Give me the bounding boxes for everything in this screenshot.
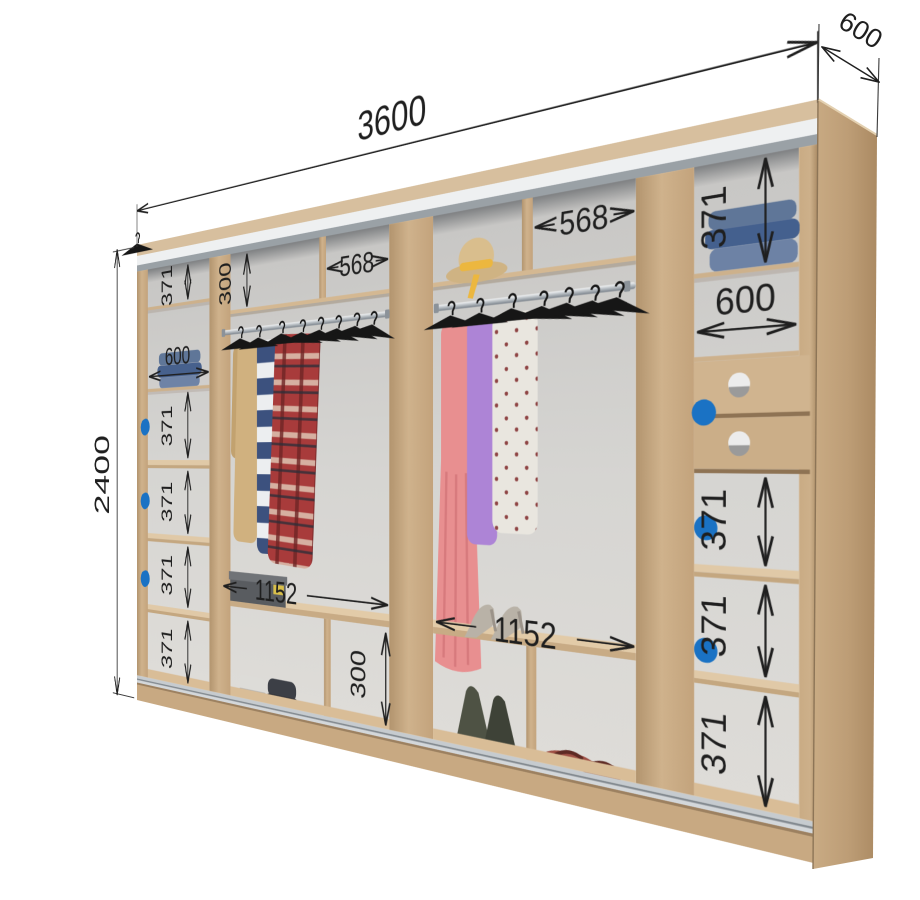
svg-text:371: 371 xyxy=(696,593,736,660)
dim-label-overall-height: 2400 xyxy=(91,435,114,515)
dim-label-overall-width: 3600 xyxy=(358,84,427,150)
svg-text:600: 600 xyxy=(165,342,191,372)
bottom-mini-partition-left xyxy=(324,619,331,718)
wardrobe-front-svg: 3600 2400 371 600 371 371 371 xyxy=(137,100,818,865)
wardrobe-front-face: 3600 2400 371 600 371 371 371 xyxy=(137,100,818,865)
svg-text:371: 371 xyxy=(159,405,176,446)
svg-text:300: 300 xyxy=(216,260,235,306)
dim-overall-height: 2400 xyxy=(91,246,134,700)
svg-text:568: 568 xyxy=(339,246,374,284)
partition-1 xyxy=(209,254,230,696)
wardrobe-dimension-diagram: 3600 2400 371 600 371 371 371 xyxy=(0,0,920,900)
svg-text:371: 371 xyxy=(159,264,176,308)
dim-label-overall-depth: 600 xyxy=(834,6,888,55)
garment-plaid-coat xyxy=(267,333,320,570)
right-side-panel xyxy=(813,99,877,869)
svg-text:300: 300 xyxy=(347,648,371,701)
top-row-mini-partition-left xyxy=(319,236,326,302)
svg-text:371: 371 xyxy=(696,488,736,552)
dim-overall-depth: 600 xyxy=(818,6,888,137)
drawer-knob-bottom xyxy=(728,431,750,456)
partition-2 xyxy=(389,216,433,739)
svg-text:371: 371 xyxy=(696,183,736,251)
garments-left xyxy=(229,330,321,571)
left-wall xyxy=(137,270,148,678)
svg-text:371: 371 xyxy=(159,481,176,522)
drawer-block xyxy=(692,355,810,474)
svg-text:371: 371 xyxy=(159,554,176,597)
right-wall xyxy=(799,144,818,823)
garment-dotted-dress xyxy=(492,309,537,535)
svg-text:371: 371 xyxy=(159,627,176,671)
svg-text:371: 371 xyxy=(696,709,736,778)
wardrobe-perspective-wrapper: 3600 2400 371 600 371 371 371 xyxy=(137,245,819,700)
top-row-mini-partition-right xyxy=(522,197,533,275)
bottom-mini-partition-right xyxy=(526,646,536,762)
partition-3 xyxy=(636,167,694,796)
svg-text:1152: 1152 xyxy=(255,575,297,612)
drawer-2 xyxy=(694,416,810,470)
svg-text:600: 600 xyxy=(715,276,776,325)
